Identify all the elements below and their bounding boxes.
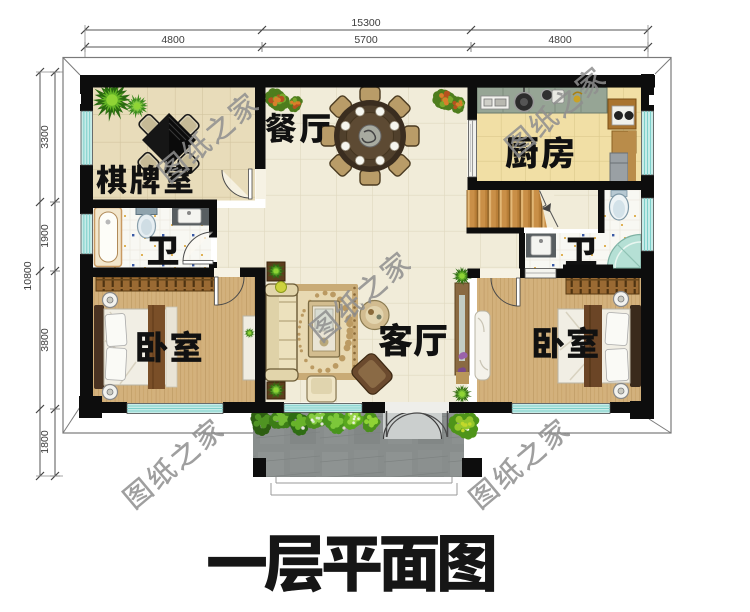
svg-text:4800: 4800 xyxy=(161,34,185,46)
svg-text:10800: 10800 xyxy=(22,261,34,290)
svg-text:3300: 3300 xyxy=(39,125,51,149)
svg-text:4800: 4800 xyxy=(548,34,572,46)
svg-text:3800: 3800 xyxy=(39,328,51,352)
svg-text:5700: 5700 xyxy=(354,34,378,46)
svg-text:15300: 15300 xyxy=(351,17,380,29)
svg-text:1900: 1900 xyxy=(39,224,51,248)
svg-text:1800: 1800 xyxy=(39,430,51,454)
